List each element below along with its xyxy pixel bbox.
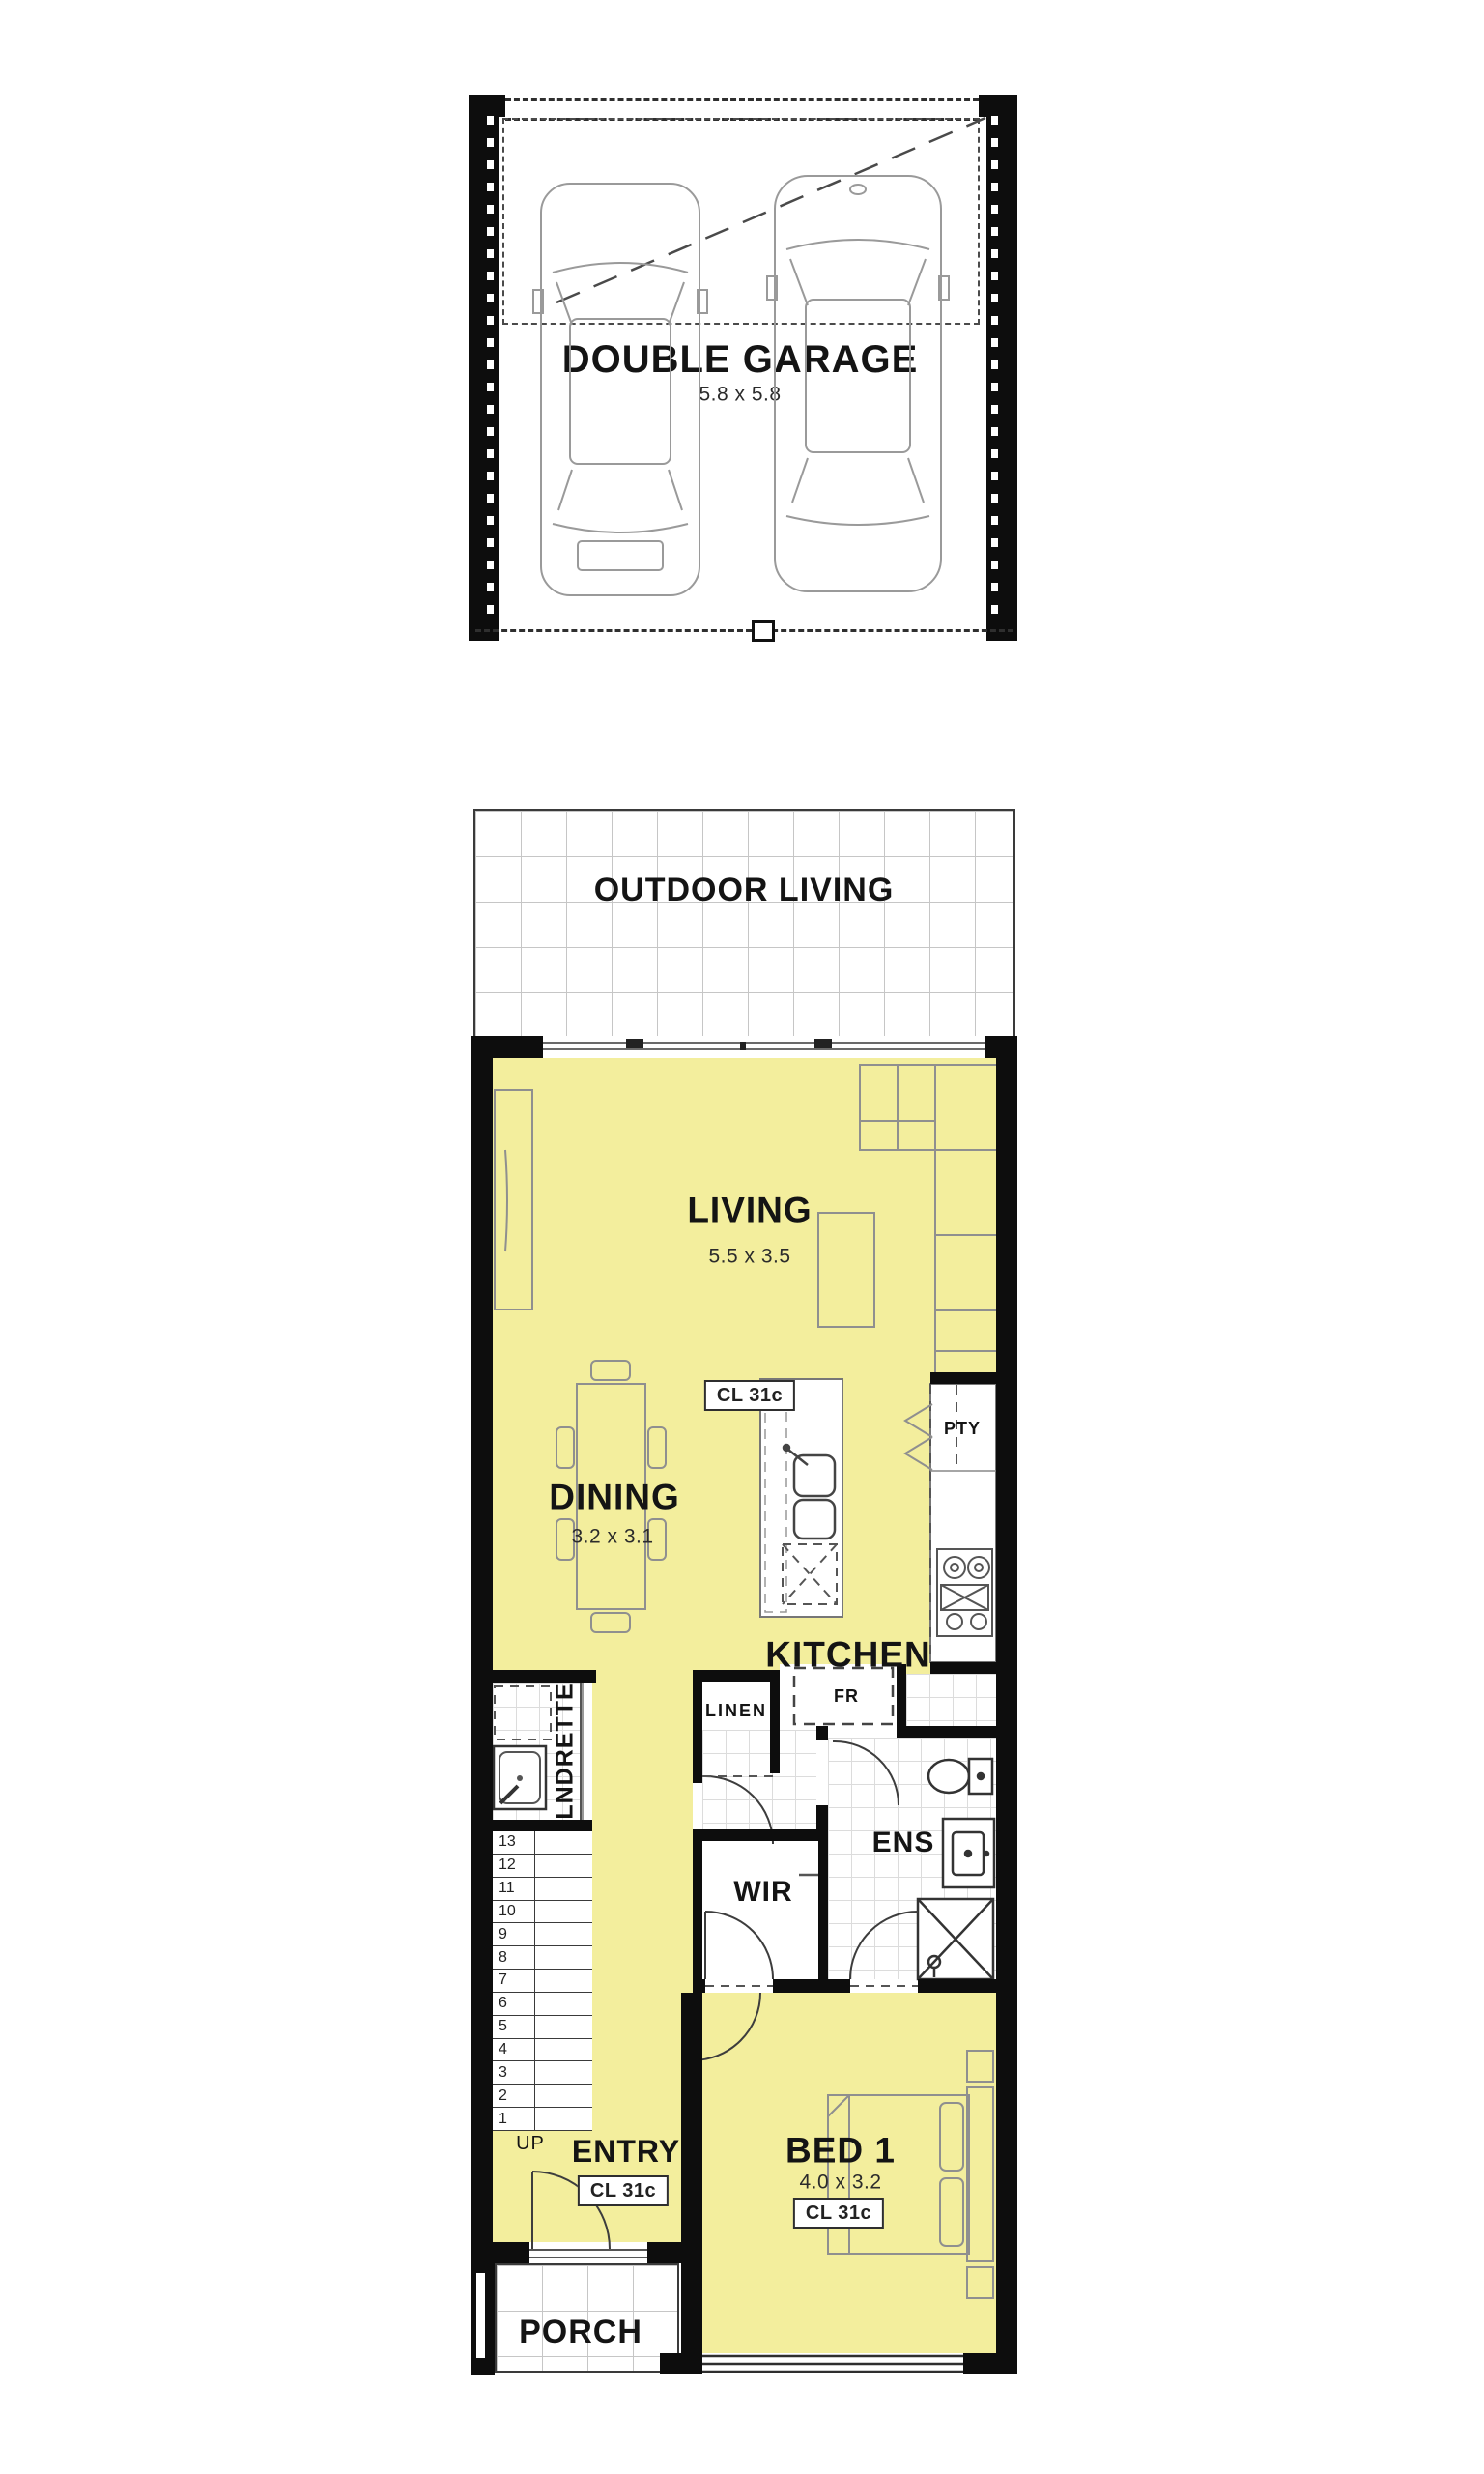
wall xyxy=(693,1841,702,1979)
wall xyxy=(471,1670,596,1683)
laundry-trough xyxy=(494,1686,551,1809)
furniture-layer xyxy=(0,0,1484,2474)
wall xyxy=(471,1820,592,1831)
stair-number: 5 xyxy=(493,2016,535,2038)
stair-number: 11 xyxy=(493,1878,535,1900)
window xyxy=(688,2356,963,2372)
wall xyxy=(773,1979,850,1993)
bed1-label: BED 1 xyxy=(785,2133,896,2169)
stair-tread: 5 xyxy=(493,2016,592,2039)
shower-icon xyxy=(918,1899,993,1979)
wall xyxy=(693,1670,702,1783)
stair-number: 13 xyxy=(493,1831,535,1854)
wall xyxy=(818,1841,828,1979)
wall xyxy=(693,1979,705,1993)
living-ceiling-tag: CL 31c xyxy=(704,1380,795,1411)
entry-ceiling-tag: CL 31c xyxy=(578,2175,669,2206)
wall xyxy=(930,1662,996,1674)
entry-label: ENTRY xyxy=(572,2136,680,2167)
stairs-up-label: UP xyxy=(516,2134,545,2153)
stair-tread: 1 xyxy=(493,2108,592,2131)
bed1-ceiling-tag: CL 31c xyxy=(793,2198,884,2229)
wir-label: WIR xyxy=(733,1878,792,1907)
dining-label: DINING xyxy=(549,1480,680,1515)
stair-number: 6 xyxy=(493,1993,535,2015)
linen-label: LINEN xyxy=(705,1702,767,1719)
wall xyxy=(471,2242,529,2263)
kitchen-label: KITCHEN xyxy=(765,1637,930,1673)
wall xyxy=(918,1979,1017,1993)
bed1-dims: 4.0 x 3.2 xyxy=(799,2172,881,2193)
stair-tread: 3 xyxy=(493,2061,592,2085)
living-label: LIVING xyxy=(687,1193,812,1228)
toilet-icon xyxy=(928,1759,992,1794)
wall xyxy=(963,2353,1017,2374)
car-icon xyxy=(767,176,949,591)
stair-number: 9 xyxy=(493,1923,535,1945)
wir-door-arc xyxy=(705,1912,773,1979)
wall xyxy=(930,1372,996,1384)
wall xyxy=(681,1993,702,2263)
stair-number: 4 xyxy=(493,2039,535,2061)
floor-plan: DOUBLE GARAGE 5.8 x 5.8 OUTDOOR LIVING xyxy=(0,0,1484,2474)
wall-left xyxy=(471,1036,493,2263)
entry-door-sill xyxy=(529,2250,647,2258)
sliding-door xyxy=(543,1039,985,1050)
living-dims: 5.5 x 3.5 xyxy=(708,1247,790,1267)
stair-tread: 13 xyxy=(493,1831,592,1855)
pantry-label: PTY xyxy=(944,1420,981,1437)
stair-number: 3 xyxy=(493,2061,535,2084)
wall xyxy=(897,1726,996,1738)
stair-number: 8 xyxy=(493,1946,535,1969)
stair-number: 10 xyxy=(493,1901,535,1923)
stair-number: 2 xyxy=(493,2085,535,2107)
kitchen-island xyxy=(760,1379,842,1617)
stair-tread: 2 xyxy=(493,2085,592,2108)
tv-unit xyxy=(495,1090,532,1309)
fridge-label: FR xyxy=(834,1687,859,1705)
staircase: 13121110987654321 xyxy=(493,1831,592,2131)
stair-tread: 10 xyxy=(493,1901,592,1924)
wall xyxy=(660,2353,702,2374)
garage-door-swing-line xyxy=(556,118,985,302)
coffee-table xyxy=(818,1213,874,1327)
stair-number: 1 xyxy=(493,2108,535,2130)
ensuite-label: ENS xyxy=(872,1828,935,1857)
stair-tread: 9 xyxy=(493,1923,592,1946)
bed1-door-arc xyxy=(693,1993,760,2060)
porch-label: PORCH xyxy=(519,2316,642,2348)
stair-tread: 7 xyxy=(493,1970,592,1993)
laundrette-label: LNDRETTE xyxy=(554,1683,578,1819)
wall xyxy=(693,1829,828,1841)
cooktop-icon xyxy=(937,1549,992,1636)
porch-pillar-slot xyxy=(476,2273,485,2358)
stair-number: 7 xyxy=(493,1970,535,1992)
wall-right xyxy=(996,1036,1017,2374)
pantry-door-chevron xyxy=(905,1437,932,1470)
wall xyxy=(770,1682,780,1773)
wall xyxy=(647,2242,702,2263)
pantry-door-chevron xyxy=(905,1404,932,1437)
stair-tread: 6 xyxy=(493,1993,592,2016)
sofa xyxy=(860,1065,997,1374)
car-icon xyxy=(533,184,707,595)
ens-entry-door-arc xyxy=(833,1741,899,1805)
stair-tread: 12 xyxy=(493,1855,592,1878)
stair-number: 12 xyxy=(493,1855,535,1877)
ens-door-arc xyxy=(850,1912,918,1979)
dining-dims: 3.2 x 3.1 xyxy=(571,1527,653,1547)
stair-tread: 8 xyxy=(493,1946,592,1970)
stair-tread: 11 xyxy=(493,1878,592,1901)
wall xyxy=(816,1726,828,1740)
stair-tread: 4 xyxy=(493,2039,592,2062)
vanity-icon xyxy=(943,1819,994,1887)
